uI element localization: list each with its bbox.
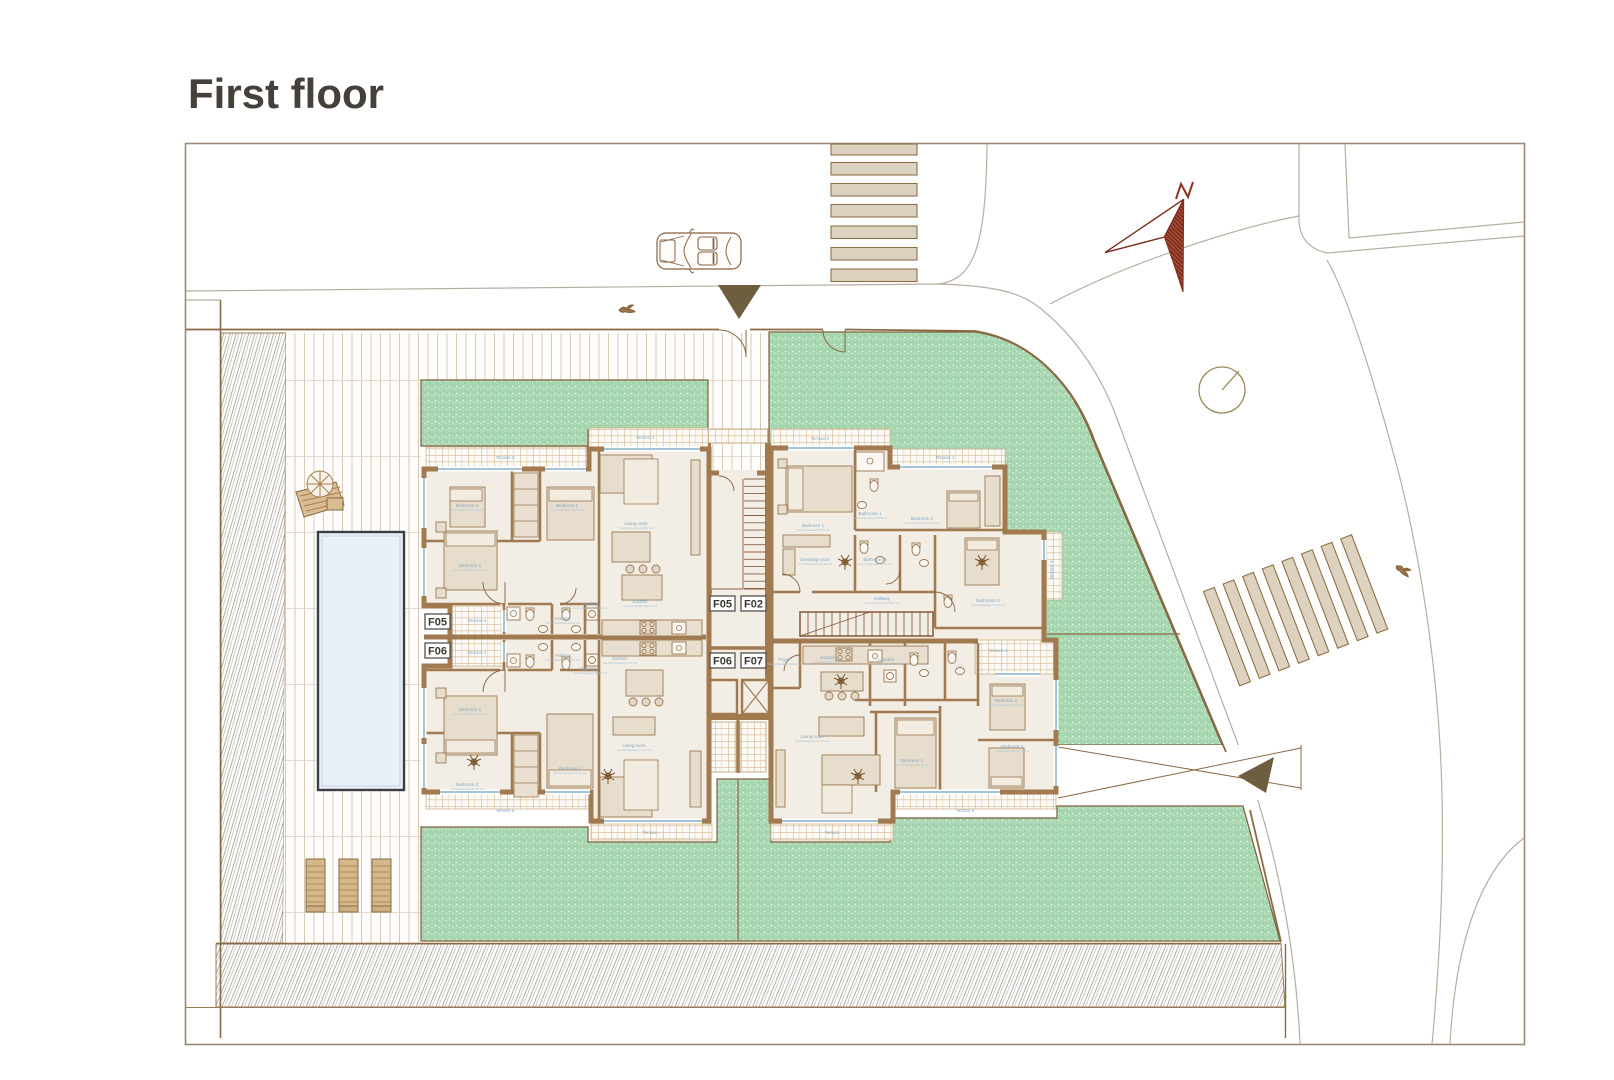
svg-text:F06: F06 (713, 656, 732, 668)
svg-text:Gross/Saleable 99.99 m2: Gross/Saleable 99.99 m2 (573, 606, 607, 610)
svg-text:Terrace 3: Terrace 3 (1049, 560, 1054, 579)
svg-text:Gross/Saleable 99.99 m2: Gross/Saleable 99.99 m2 (858, 562, 892, 566)
svg-text:Gross/Saleable 99.99 m2: Gross/Saleable 99.99 m2 (796, 528, 830, 532)
svg-text:Terrace 5: Terrace 5 (956, 808, 975, 813)
svg-text:Gross/Saleable 99.99 m2: Gross/Saleable 99.99 m2 (546, 621, 580, 625)
svg-text:Gross/Saleable 99.99 m2: Gross/Saleable 99.99 m2 (603, 661, 637, 665)
svg-text:Terrace 1: Terrace 1 (936, 455, 955, 460)
svg-text:Gross/Saleable 99.99 m2: Gross/Saleable 99.99 m2 (811, 660, 845, 664)
svg-text:Gross/Saleable 99.99 m2: Gross/Saleable 99.99 m2 (869, 662, 903, 666)
svg-text:Gross/Saleable 99.99 m2: Gross/Saleable 99.99 m2 (450, 787, 484, 791)
svg-text:Terrace: Terrace (824, 830, 840, 835)
svg-text:Gross/Saleable 99.99 m2: Gross/Saleable 99.99 m2 (989, 703, 1023, 707)
svg-text:Gross/Saleable 99.99 m2: Gross/Saleable 99.99 m2 (453, 568, 487, 572)
svg-text:Gross/Saleable 99.99 m2: Gross/Saleable 99.99 m2 (853, 516, 887, 520)
svg-text:Terrace 4: Terrace 4 (468, 650, 487, 655)
svg-text:F02: F02 (744, 599, 763, 611)
svg-text:F05: F05 (428, 617, 447, 629)
svg-text:Gross/Saleable 99.99 m2: Gross/Saleable 99.99 m2 (795, 739, 829, 743)
svg-text:F06: F06 (428, 646, 447, 658)
svg-text:Gross/Saleable 99.99 m2: Gross/Saleable 99.99 m2 (546, 658, 580, 662)
svg-text:Gross/Saleable 99.99 m2: Gross/Saleable 99.99 m2 (767, 662, 801, 666)
svg-text:Gross/Saleable 99.99 m2: Gross/Saleable 99.99 m2 (895, 763, 929, 767)
svg-text:Gross/Saleable 99.99 m2: Gross/Saleable 99.99 m2 (619, 526, 653, 530)
svg-text:Terrace 2: Terrace 2 (811, 436, 830, 441)
svg-text:Gross/Saleable 99.99 m2: Gross/Saleable 99.99 m2 (905, 521, 939, 525)
svg-text:Gross/Saleable 99.99 m2: Gross/Saleable 99.99 m2 (617, 748, 651, 752)
svg-text:F07: F07 (744, 656, 763, 668)
svg-text:Terrace 3: Terrace 3 (468, 618, 487, 623)
svg-text:Gross/Saleable 99.99 m2: Gross/Saleable 99.99 m2 (623, 604, 657, 608)
svg-text:Gross/Saleable 99.99 m2: Gross/Saleable 99.99 m2 (971, 603, 1005, 607)
svg-text:Gross/Saleable 99.99 m2: Gross/Saleable 99.99 m2 (573, 671, 607, 675)
svg-text:Terrace 2: Terrace 2 (496, 455, 515, 460)
svg-text:First floor: First floor (188, 70, 384, 117)
svg-text:Gross/Saleable 99.99 m2: Gross/Saleable 99.99 m2 (453, 712, 487, 716)
svg-text:Gross/Saleable 99.99 m2: Gross/Saleable 99.99 m2 (553, 771, 587, 775)
svg-text:Terrace: Terrace (642, 830, 658, 835)
svg-text:Gross/Saleable 99.99 m2: Gross/Saleable 99.99 m2 (798, 562, 832, 566)
svg-text:Terrace 4: Terrace 4 (989, 648, 1008, 653)
svg-text:Terrace 5: Terrace 5 (496, 808, 515, 813)
svg-text:Terrace 1: Terrace 1 (636, 435, 655, 440)
svg-text:Gross/Saleable 99.99 m2: Gross/Saleable 99.99 m2 (450, 508, 484, 512)
svg-text:Gross/Saleable 99.99 m2: Gross/Saleable 99.99 m2 (865, 601, 899, 605)
svg-text:F05: F05 (713, 599, 732, 611)
svg-text:Gross/Saleable 99.99 m2: Gross/Saleable 99.99 m2 (550, 508, 584, 512)
svg-text:Gross/Saleable 99.99 m2: Gross/Saleable 99.99 m2 (995, 749, 1029, 753)
